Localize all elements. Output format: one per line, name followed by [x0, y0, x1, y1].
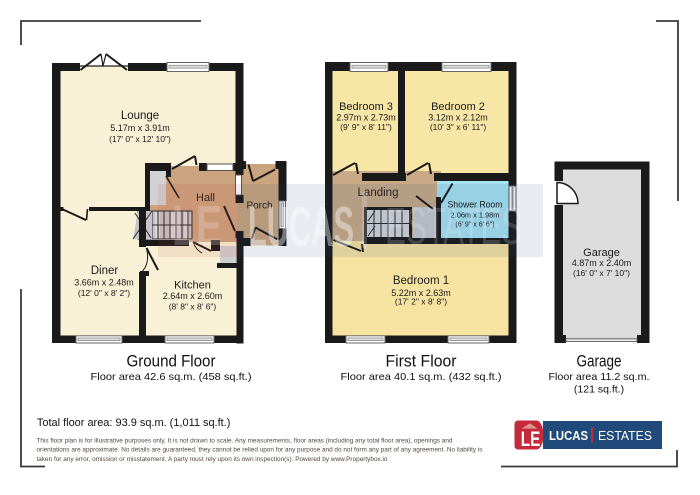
svg-text:Floor area 11.2 sq.m.: Floor area 11.2 sq.m.	[549, 371, 650, 383]
svg-text:3.66m x 2.48m: 3.66m x 2.48m	[74, 278, 134, 288]
svg-text:Floor area 40.1 sq.m. (432 sq.: Floor area 40.1 sq.m. (432 sq.ft.)	[341, 371, 502, 383]
svg-text:5.17m x 3.91m: 5.17m x 3.91m	[110, 123, 170, 133]
svg-text:ESTATES: ESTATES	[385, 198, 522, 256]
svg-text:2.64m x 2.60m: 2.64m x 2.60m	[163, 291, 223, 301]
svg-text:Diner: Diner	[91, 265, 119, 277]
svg-text:Kitchen: Kitchen	[174, 280, 211, 292]
svg-text:(17' 0" x 12' 10"): (17' 0" x 12' 10")	[109, 134, 171, 144]
svg-text:Bedroom 1: Bedroom 1	[393, 275, 449, 287]
svg-text:Total floor area: 93.9 sq.m. (: Total floor area: 93.9 sq.m. (1,011 sq.f…	[37, 417, 231, 429]
svg-text:Floor area 42.6 sq.m. (458 sq.: Floor area 42.6 sq.m. (458 sq.ft.)	[91, 371, 252, 383]
svg-text:LE: LE	[521, 428, 541, 451]
svg-text:orientations are approximate.: orientations are approximate. No details…	[37, 447, 484, 454]
svg-text:(8' 8" x 8' 6"): (8' 8" x 8' 6")	[169, 302, 217, 312]
svg-text:LUCAS: LUCAS	[248, 195, 354, 259]
svg-text:First Floor: First Floor	[386, 353, 457, 371]
svg-text:Bedroom 2: Bedroom 2	[431, 101, 485, 113]
svg-text:(9' 9" x 8' 11"): (9' 9" x 8' 11")	[340, 122, 392, 132]
svg-text:Garage: Garage	[577, 353, 622, 371]
svg-text:(121 sq.ft.): (121 sq.ft.)	[574, 384, 624, 396]
svg-text:4.87m x 2.40m: 4.87m x 2.40m	[572, 258, 632, 268]
svg-text:LE: LE	[172, 194, 222, 258]
svg-text:Lounge: Lounge	[121, 110, 159, 122]
svg-text:taken for any error, omission: taken for any error, omission or misstat…	[37, 456, 388, 463]
svg-text:(10' 3" x 6' 11"): (10' 3" x 6' 11")	[430, 122, 487, 132]
svg-text:Ground Floor: Ground Floor	[127, 353, 216, 371]
svg-text:Bedroom 3: Bedroom 3	[339, 101, 393, 113]
svg-text:(12' 0" x 8' 2"): (12' 0" x 8' 2")	[78, 288, 130, 298]
svg-text:(17' 2" x 8' 8"): (17' 2" x 8' 8")	[395, 297, 447, 307]
svg-text:LUCAS: LUCAS	[549, 428, 588, 443]
svg-text:(16' 0" x 7' 10"): (16' 0" x 7' 10")	[573, 268, 630, 278]
svg-text:ESTATES: ESTATES	[598, 429, 652, 443]
svg-text:This floor plan is for illustr: This floor plan is for illustrative purp…	[37, 437, 453, 444]
